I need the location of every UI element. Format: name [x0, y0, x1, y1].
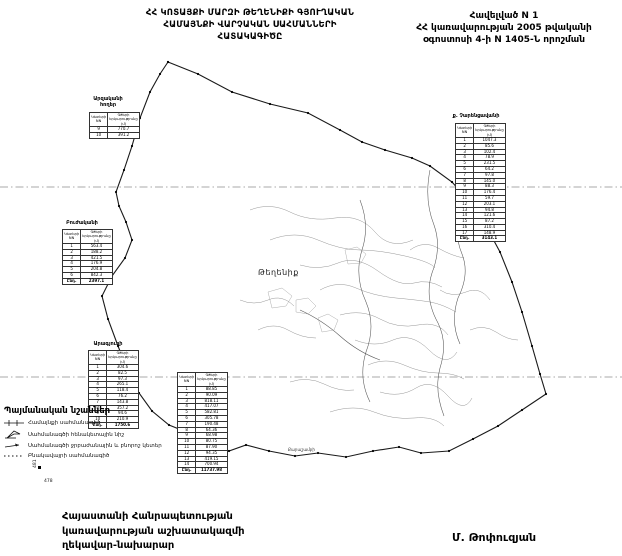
- table-row: 10391.2: [90, 132, 140, 138]
- annex-line1: Հավելված N 1: [392, 10, 616, 22]
- signature-name: Մ. Թոփուզյան: [452, 531, 536, 544]
- signatory-office-line3: ղեկավար-նախարար: [62, 539, 245, 554]
- table-title-charentsavan: ք. Չարենցավանի: [438, 113, 514, 119]
- table-total-row: Ընդ.11737.98: [178, 468, 228, 474]
- cell: 10: [90, 132, 108, 138]
- stream-lines: [300, 170, 465, 416]
- boundary-table-charentsavan: Կետերի NNԳծերի երկարությունը (մ)11047.32…: [455, 123, 506, 242]
- total-cell: Ընդ.: [63, 278, 81, 284]
- elevation-mark-481: 481: [33, 459, 38, 468]
- table-total-row: Ընդ.3143.1: [456, 236, 506, 242]
- column-header: Կետերի NN: [178, 373, 196, 387]
- legend-item-community-boundary: Համայնքի սահմանագիծ: [4, 419, 162, 427]
- total-cell: Ընդ.: [456, 236, 474, 242]
- boundary-table-buzhakan: Կետերի NNԳծերի երկարությունը (մ)1563.421…: [62, 229, 113, 285]
- column-header: Գծերի երկարությունը (մ): [81, 230, 112, 244]
- column-header: Կետերի NN: [90, 113, 108, 127]
- column-header: Կետերի NN: [456, 124, 474, 138]
- benchmark-flag-icon: [4, 430, 24, 439]
- table-header-row: Կետերի NNԳծերի երկարությունը (մ): [178, 373, 228, 387]
- total-cell: 2397.1: [81, 278, 112, 284]
- page-title-line3: ՀԱՏԱԿԱԳԻԾԸ: [118, 32, 382, 44]
- total-cell: 11737.98: [196, 468, 227, 474]
- legend: Պայմանական նշաններ Համայնքի սահմանագիծ Ս…: [4, 406, 162, 459]
- boundary-table-segments: Կետերի NNԳծերի երկարությունը (մ)188.8529…: [177, 372, 228, 474]
- annex-line3: օգոստոսի 4-ի N 1405-Ն որոշման: [392, 34, 616, 46]
- cell: 391.2: [108, 132, 139, 138]
- table-header-row: Կետերի NNԳծերի երկարությունը (մ): [456, 124, 506, 138]
- community-boundary-line: [102, 62, 546, 457]
- boundary-table-arzakan: Կետերի NNԳծերի երկարությունը (մ)9770.710…: [89, 112, 140, 139]
- legend-item-label: Սահմանագծի հենակետային նիշ: [28, 432, 124, 438]
- table-title-buzhakan: Բուժականի: [50, 220, 114, 226]
- village-label: Թեղենիք: [258, 268, 299, 277]
- legend-item-characteristic-points: Սահմանագծի ջրբաժանային և բնորոշ կետեր: [4, 442, 162, 450]
- elevation-mark-478: 478: [44, 479, 53, 484]
- column-header: Գծերի երկարությունը (մ): [196, 373, 227, 387]
- table-title-arzakan: Արզականի հողեր: [78, 96, 138, 108]
- legend-item-label: Բնակավայրի սահմանագիծ: [28, 453, 109, 459]
- table-header-row: Կետերի NNԳծերի երկարությունը (մ): [89, 351, 139, 365]
- annex-reference: Հավելված N 1 ՀՀ կառավարության 2005 թվակա…: [392, 10, 616, 46]
- characteristic-point-arrow-icon: [4, 442, 24, 450]
- table-total-row: Ընդ.2397.1: [63, 278, 113, 284]
- page-title-line2: ՀԱՄԱՅՆՔԻ ՎԱՐՉԱԿԱՆ ՍԱՀՄԱՆՆԵՐԻ: [118, 20, 382, 32]
- page-title: ՀՀ ԿՈՏԱՅՔԻ ՄԱՐԶԻ ԹԵՂԵՆԻՔԻ ԳՅՈՒՂԱԿԱՆ ՀԱՄԱ…: [118, 8, 382, 44]
- legend-item-label: Սահմանագծի ջրբաժանային և բնորոշ կետեր: [28, 443, 162, 449]
- table-header-row: Կետերի NNԳծերի երկարությունը (մ): [63, 230, 113, 244]
- total-cell: Ընդ.: [178, 468, 196, 474]
- signatory-office-line2: կառավարության աշխատակազմի: [62, 525, 245, 540]
- column-header: Գծերի երկարությունը (մ): [108, 113, 139, 127]
- legend-title: Պայմանական նշաններ: [4, 406, 162, 416]
- table-title-aragyugh: Արագյուղի: [78, 341, 138, 347]
- signatory-office-line1: Հայաստանի Հանրապետության: [62, 510, 245, 525]
- column-header: Գծերի երկարությունը (մ): [474, 124, 505, 138]
- neighbor-label: Քարաշամբի: [288, 447, 315, 452]
- legend-item-settlement-boundary: Բնակավայրի սահմանագիծ: [4, 453, 162, 459]
- community-boundary-icon: [4, 419, 24, 427]
- settlement-boundary-dotted-icon: [4, 453, 24, 459]
- column-header: Կետերի NN: [89, 351, 107, 365]
- column-header: Կետերի NN: [63, 230, 81, 244]
- page-title-line1: ՀՀ ԿՈՏԱՅՔԻ ՄԱՐԶԻ ԹԵՂԵՆԻՔԻ ԳՅՈՒՂԱԿԱՆ: [118, 8, 382, 20]
- total-cell: 3143.1: [474, 236, 505, 242]
- legend-item-benchmark: Սահմանագծի հենակետային նիշ: [4, 430, 162, 439]
- annex-line2: ՀՀ կառավարության 2005 թվականի: [392, 22, 616, 34]
- table-header-row: Կետերի NNԳծերի երկարությունը (մ): [90, 113, 140, 127]
- legend-item-label: Համայնքի սահմանագիծ: [28, 420, 100, 426]
- benchmark-symbol: [38, 466, 41, 469]
- signatory-office: Հայաստանի Հանրապետության կառավարության ա…: [62, 510, 245, 554]
- column-header: Գծերի երկարությունը (մ): [107, 351, 138, 365]
